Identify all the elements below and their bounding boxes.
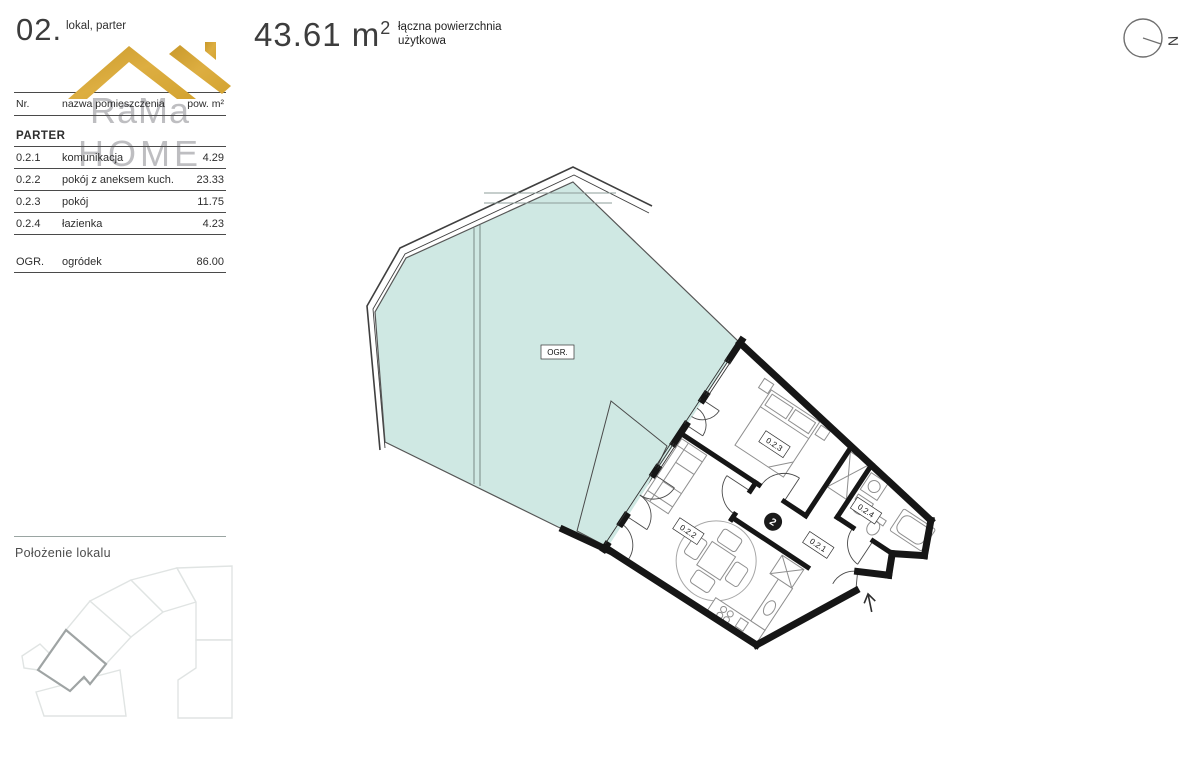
- compass-north-letter: N: [1165, 36, 1181, 47]
- table-row: 0.2.4 łazienka 4.23: [14, 213, 226, 234]
- floorplan-sheet: { "header": { "unit_number": "02.", "uni…: [0, 0, 1200, 774]
- site-miniplan: [22, 566, 232, 718]
- facade-wall: [654, 468, 658, 474]
- table-row: 0.2.1 komunikacja 4.29: [14, 147, 226, 168]
- neighbor-unit: [178, 640, 232, 718]
- row-area: 11.75: [178, 196, 224, 208]
- total-area-caption-line1: łączna powierzchnia: [398, 20, 502, 34]
- unit-number: 02.: [16, 12, 62, 48]
- table-row: 0.2.2 pokój z aneksem kuch. 23.33: [14, 169, 226, 190]
- row-area: 86.00: [178, 256, 224, 268]
- facade-wall: [621, 516, 626, 524]
- total-area-number: 43.61 m: [254, 16, 380, 53]
- garden-row: OGR. ogródek 86.00: [14, 251, 226, 272]
- garden-label-text: OGR.: [547, 348, 567, 357]
- compass: N: [1124, 19, 1181, 57]
- row-nr: 0.2.4: [16, 218, 62, 230]
- row-name: pokój: [62, 196, 178, 208]
- garden-label: OGR.: [541, 345, 574, 359]
- row-name: łazienka: [62, 218, 178, 230]
- total-area-sup: 2: [380, 18, 391, 38]
- row-nr: 0.2.2: [16, 174, 62, 186]
- compass-needle: [1143, 38, 1161, 44]
- total-area-caption: łączna powierzchnia użytkowa: [398, 20, 502, 48]
- row-name: ogródek: [62, 256, 178, 268]
- logo-roof-chimney: [205, 42, 216, 60]
- total-area-caption-line2: użytkowa: [398, 34, 502, 48]
- facade-wall: [604, 545, 607, 549]
- row-nr: OGR.: [16, 256, 62, 268]
- row-name: pokój z aneksem kuch.: [62, 174, 178, 186]
- entry-arrow-icon: [861, 594, 879, 612]
- row-area: 4.29: [178, 152, 224, 164]
- row-nr: 0.2.1: [16, 152, 62, 164]
- table-line: [14, 272, 226, 273]
- unit-type-label: lokal, parter: [66, 20, 126, 32]
- table-row: 0.2.3 pokój 11.75: [14, 191, 226, 212]
- table-spacer: [14, 235, 226, 251]
- table-section-title: PARTER: [14, 116, 226, 146]
- total-area-value: 43.61 m2: [254, 16, 391, 54]
- row-nr: 0.2.3: [16, 196, 62, 208]
- row-area: 23.33: [178, 174, 224, 186]
- facade-wall: [703, 395, 706, 400]
- row-name: komunikacja: [62, 152, 178, 164]
- row-area: 4.23: [178, 218, 224, 230]
